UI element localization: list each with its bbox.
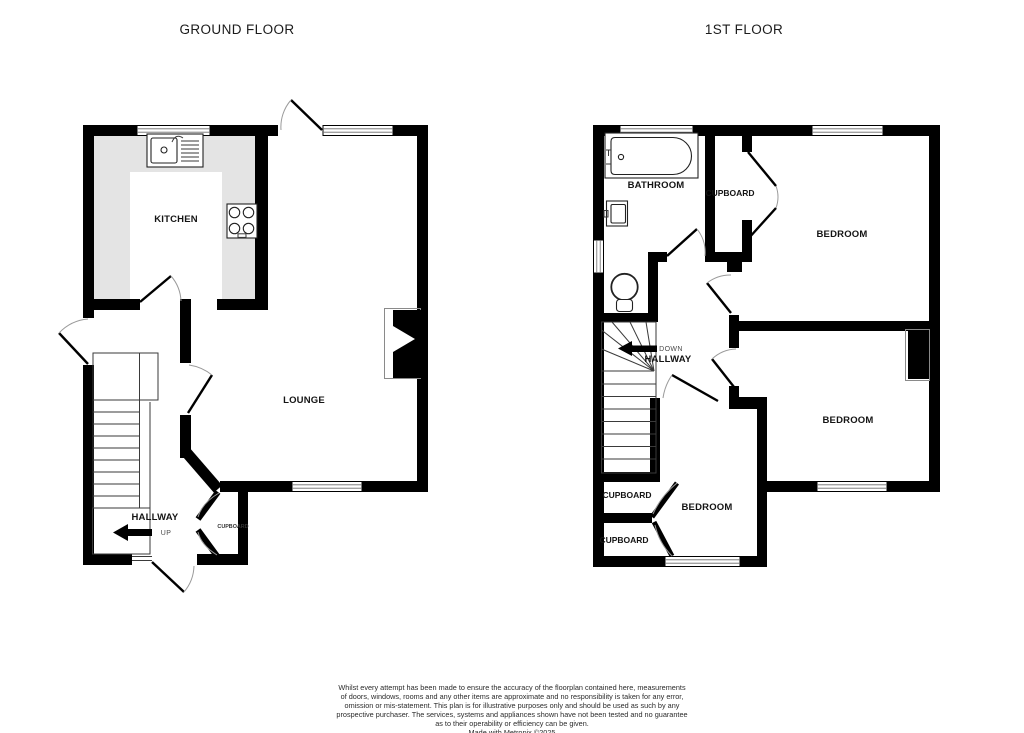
disclaimer-line: omission or mis-statement. This plan is … [0, 701, 1024, 710]
door-swing [59, 319, 88, 364]
disclaimer-line: prospective purchaser. The services, sys… [0, 710, 1024, 719]
lounge-label: LOUNGE [283, 395, 325, 406]
disclaimer-line: of doors, windows, rooms and any other i… [0, 692, 1024, 701]
door-swing [188, 365, 212, 413]
floorplan-canvas: KITCHEN LOUNGE HALLWAY UP CUPBOARD [0, 0, 1024, 733]
ground-floor-plan: KITCHEN LOUNGE HALLWAY UP CUPBOARD [59, 100, 428, 592]
toilet-icon [611, 274, 637, 312]
door-swing [281, 100, 322, 130]
kitchen-label: KITCHEN [154, 214, 198, 225]
bathroom-label: BATHROOM [628, 180, 685, 191]
door-swing [132, 557, 194, 593]
cupboard-label-gf: CUPBOARD [217, 524, 248, 530]
window [292, 482, 362, 492]
first-floor-plan: BATHROOM CUPBOARD BEDROOM BEDROOM BEDROO… [593, 125, 940, 567]
window [812, 126, 883, 136]
bedroom-bottom-label: BEDROOM [681, 502, 732, 513]
bedroom-right-label: BEDROOM [822, 415, 873, 426]
up-arrow-icon [113, 524, 152, 541]
cupboard-top-label: CUPBOARD [705, 188, 754, 198]
stairs-up [93, 353, 159, 554]
door-swing [663, 375, 718, 401]
hallway-label-gf: HALLWAY [132, 512, 179, 523]
floorplan-page: GROUND FLOOR 1ST FLOOR [0, 0, 1024, 733]
disclaimer-line: Whilst every attempt has been made to en… [0, 683, 1024, 692]
sink-icon [147, 134, 203, 167]
bathtub-icon [605, 133, 698, 178]
door-swing [667, 229, 705, 256]
door-swing [712, 349, 736, 387]
cupboard-left-lower-label: CUPBOARD [599, 535, 648, 545]
chimney-breast [906, 330, 930, 381]
cupboard-left-upper-label: CUPBOARD [602, 490, 651, 500]
window [817, 482, 887, 492]
disclaimer-line: as to their operability or efficiency ca… [0, 719, 1024, 728]
window [665, 557, 740, 567]
chimney-breast [385, 309, 422, 379]
door-swing [707, 275, 731, 313]
hallway-label-ff: HALLWAY [645, 354, 692, 365]
up-label: UP [161, 530, 172, 537]
disclaimer-line: Made with Metropix ©2025 [0, 728, 1024, 733]
hob-icon [227, 204, 257, 238]
bedroom-top-label: BEDROOM [816, 229, 867, 240]
window [323, 126, 393, 136]
disclaimer: Whilst every attempt has been made to en… [0, 683, 1024, 733]
window [594, 240, 604, 273]
washbasin-icon [604, 201, 628, 226]
ground-floor-walls [83, 125, 428, 565]
down-label: DOWN [659, 346, 683, 353]
door-swing [140, 276, 181, 302]
